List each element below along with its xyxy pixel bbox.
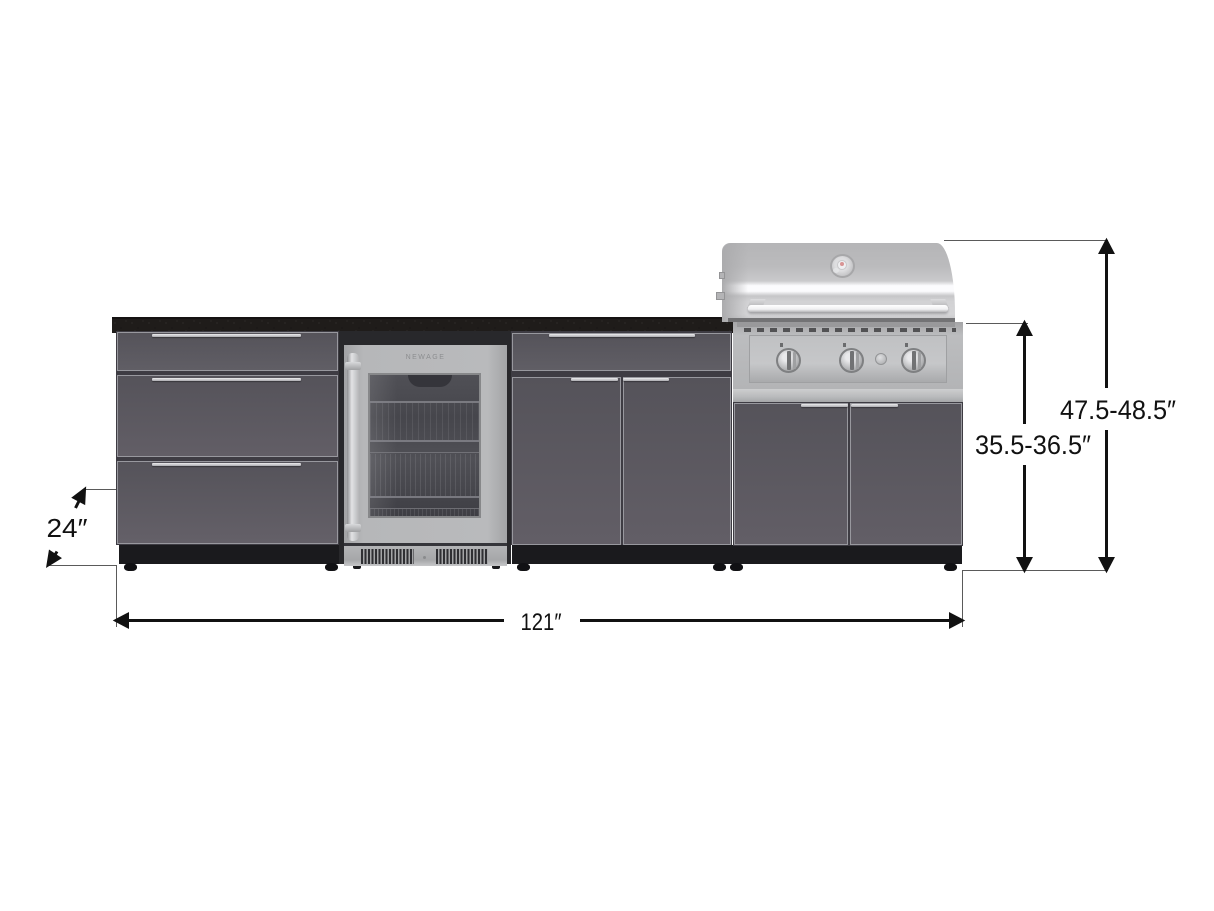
- svg-text:24″: 24″: [47, 513, 88, 543]
- svg-text:121″: 121″: [521, 609, 562, 636]
- svg-text:47.5-48.5″: 47.5-48.5″: [1060, 395, 1176, 425]
- svg-text:35.5-36.5″: 35.5-36.5″: [975, 430, 1091, 460]
